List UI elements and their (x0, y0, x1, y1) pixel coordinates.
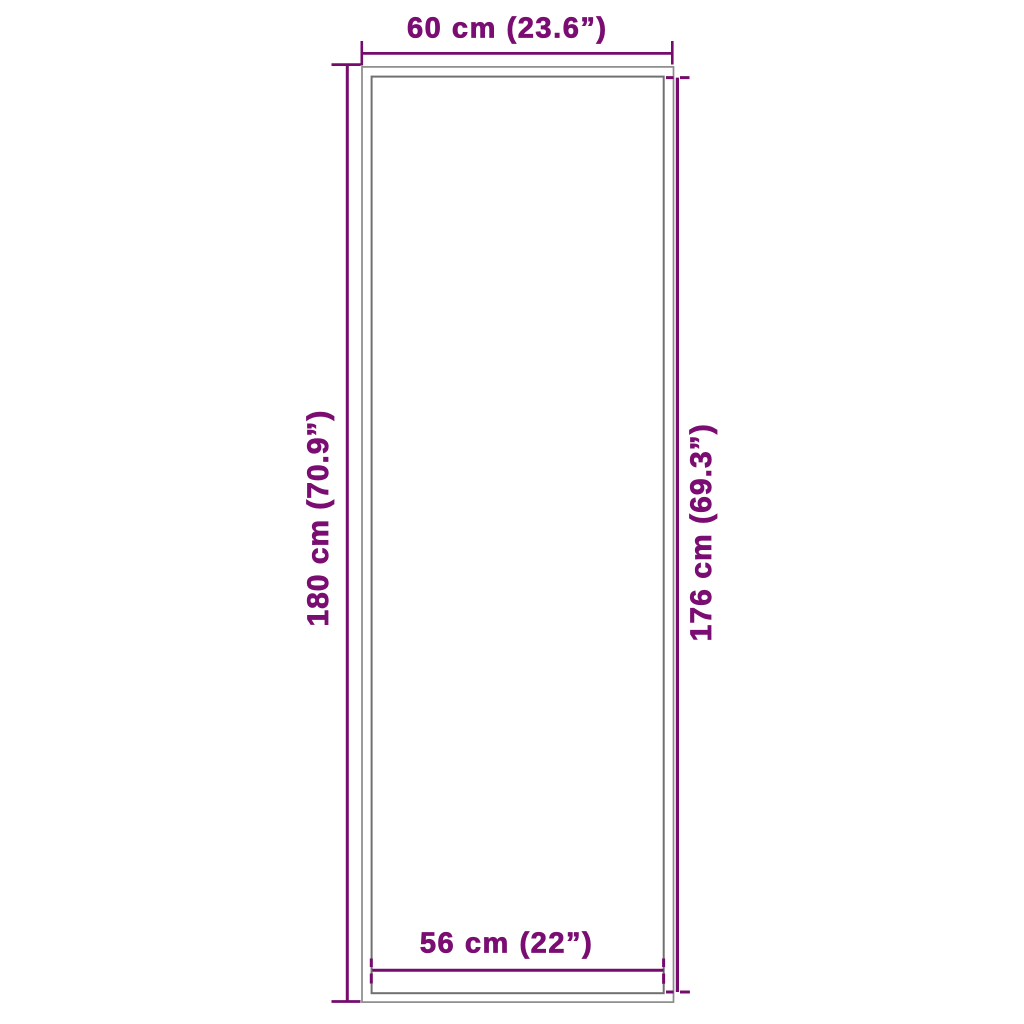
svg-text:180 cm (70.9”): 180 cm (70.9”) (302, 410, 335, 627)
svg-text:56 cm (22”): 56 cm (22”) (420, 927, 593, 959)
svg-text:176 cm (69.3”): 176 cm (69.3”) (685, 423, 718, 641)
svg-text:60 cm (23.6”): 60 cm (23.6”) (407, 13, 608, 45)
